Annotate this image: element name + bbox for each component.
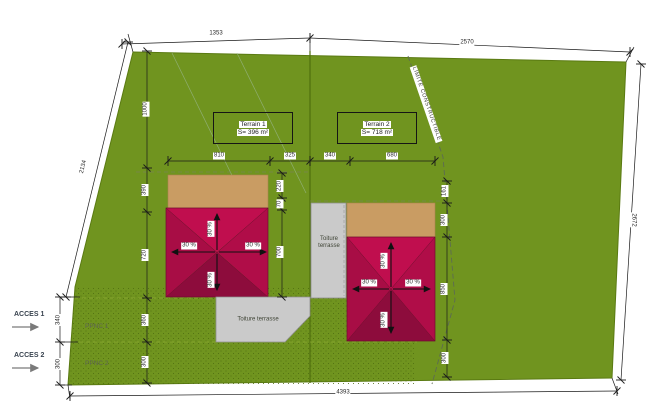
dim-acces2-height: 300 [56,358,63,370]
site-plan-drawing [0,0,666,416]
terrain-1-label-box: Terrain 1 S= 396 m² [213,112,293,144]
terrain-2-label-box: Terrain 2 S= 718 m² [337,112,417,144]
acces-arrows [12,327,38,368]
terrain-1-name: Terrain 1 [239,121,266,128]
ppnc-2-label: PPNC 2 [85,360,108,367]
b1-slope-down: 30 % [208,272,215,288]
dim-b2-bottom: 300 [442,352,449,364]
dim-b2-gap: 161 [442,185,449,197]
dim-b1-220: 220 [277,180,284,192]
ppnc-1-label: PPNC 1 [85,323,108,330]
dim-col-300: 300 [142,356,149,368]
dim-right-side: 2672 [630,212,637,227]
dim-bottom: 4393 [335,390,350,397]
dim-col-360: 360 [142,314,149,326]
building-1-annex [168,175,268,208]
dim-top-right: 2570 [459,40,474,47]
b1-slope-left: 30 % [181,243,197,250]
terrain-2-name: Terrain 2 [363,121,390,128]
dim-b1-700: 700 [277,246,284,258]
terrain-1-area: S= 396 m² [237,129,269,136]
building-2-flat-roof [311,203,346,298]
acces-1-label: ACCES 1 [14,311,44,318]
dim-b2-height: 850 [441,283,448,295]
dim-col-720: 720 [142,249,149,261]
site-plan: Terrain 1 S= 396 m² Terrain 2 S= 718 m² … [0,0,666,416]
dim-col-1000: 1000 [143,101,150,116]
b2-slope-left: 30 % [361,280,377,287]
dim-col-390: 390 [142,184,149,196]
terrain-2-area: S= 718 m² [361,129,393,136]
building-1-toiture-terrasse-label: Toiture terrasse [237,317,278,324]
b1-slope-right: 30 % [245,243,261,250]
building-2-annex [347,203,435,237]
b2-slope-right: 30 % [405,280,421,287]
b1-slope-up: 30 % [208,221,215,237]
dim-row-810: 810 [213,153,225,160]
dim-row-680: 680 [386,153,398,160]
dim-b1-70: 70 [277,200,284,209]
b2-slope-up: 30 % [381,253,388,269]
dim-b2-tan: 300 [441,214,448,226]
dim-top-left: 1353 [208,31,223,38]
b2-slope-down: 30 % [381,312,388,328]
building-2-toiture-terrasse-label: Toiture terrasse [318,236,340,250]
building-1 [166,175,268,297]
dim-acces1-height: 340 [56,314,63,326]
dim-row-340: 340 [324,153,336,160]
acces-2-label: ACCES 2 [14,352,44,359]
dim-row-325: 325 [284,153,296,160]
